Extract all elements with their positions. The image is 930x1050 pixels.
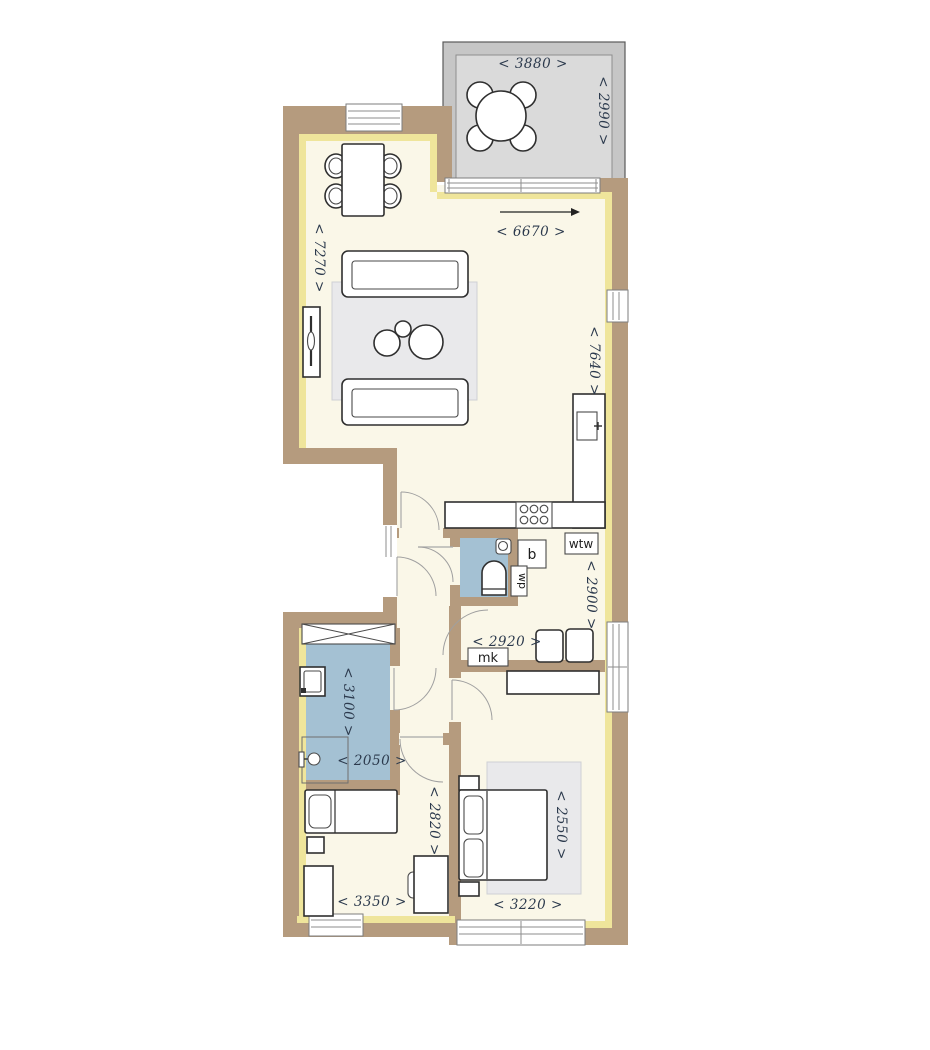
single-bed bbox=[305, 790, 397, 833]
dimension-balcony-width: < 3880 > bbox=[498, 56, 568, 72]
dimension-kitchen-wall: < 7640 > bbox=[586, 326, 602, 396]
floor-plan: < 3880 > < 2990 > < 6670 > < 7270 > < 76… bbox=[0, 0, 930, 1050]
label-meter-cupboard: mk bbox=[478, 651, 499, 666]
nightstand bbox=[307, 837, 324, 853]
label-heat-pump: wp bbox=[516, 573, 529, 589]
dimension-bathroom-width: < 2050 > bbox=[337, 753, 407, 769]
window-bedroom2 bbox=[309, 914, 363, 936]
cooktop bbox=[516, 502, 552, 528]
nightstand bbox=[459, 776, 479, 790]
washbasin-tap-icon bbox=[301, 688, 306, 693]
sofa-set bbox=[332, 251, 477, 425]
coffee-table bbox=[395, 321, 411, 337]
dimension-living-width: < 6670 > bbox=[496, 224, 566, 240]
tv-cabinet bbox=[303, 307, 320, 377]
dimension-bedroom2-width: < 3350 > bbox=[337, 894, 407, 910]
desk bbox=[414, 856, 448, 913]
study-chair bbox=[566, 629, 593, 662]
window-right-kitchen bbox=[607, 290, 628, 322]
dimension-living-length: < 7270 > bbox=[311, 223, 327, 293]
pillow bbox=[464, 796, 483, 834]
sideboard bbox=[507, 671, 599, 694]
floor-plan-drawing: < 3880 > < 2990 > < 6670 > < 7270 > < 76… bbox=[0, 0, 930, 1050]
label-boiler: b bbox=[528, 547, 537, 563]
nightstand bbox=[459, 882, 479, 896]
dimension-master-depth: < 2550 > bbox=[553, 790, 569, 860]
sliding-door bbox=[445, 178, 600, 193]
built-in-closet bbox=[302, 624, 395, 644]
dimension-balcony-depth: < 2990 > bbox=[595, 76, 611, 146]
dimension-hall-width: < 2920 > bbox=[472, 634, 542, 650]
dining-table bbox=[342, 144, 384, 216]
double-bed bbox=[459, 790, 547, 880]
pillow bbox=[309, 795, 331, 828]
balcony-table bbox=[476, 91, 526, 141]
pillow bbox=[464, 839, 483, 877]
wardrobe bbox=[304, 866, 333, 916]
toilet bbox=[482, 561, 506, 595]
label-heat-recovery: wtw bbox=[569, 537, 594, 551]
coffee-table bbox=[409, 325, 443, 359]
dimension-bedroom2-depth: < 2820 > bbox=[426, 786, 442, 856]
dimension-bathroom-length: < 3100 > bbox=[340, 667, 356, 737]
dimension-tech-depth: < 2900 > bbox=[583, 560, 599, 630]
dimension-master-width: < 3220 > bbox=[493, 897, 563, 913]
shower-head-icon bbox=[308, 753, 320, 765]
